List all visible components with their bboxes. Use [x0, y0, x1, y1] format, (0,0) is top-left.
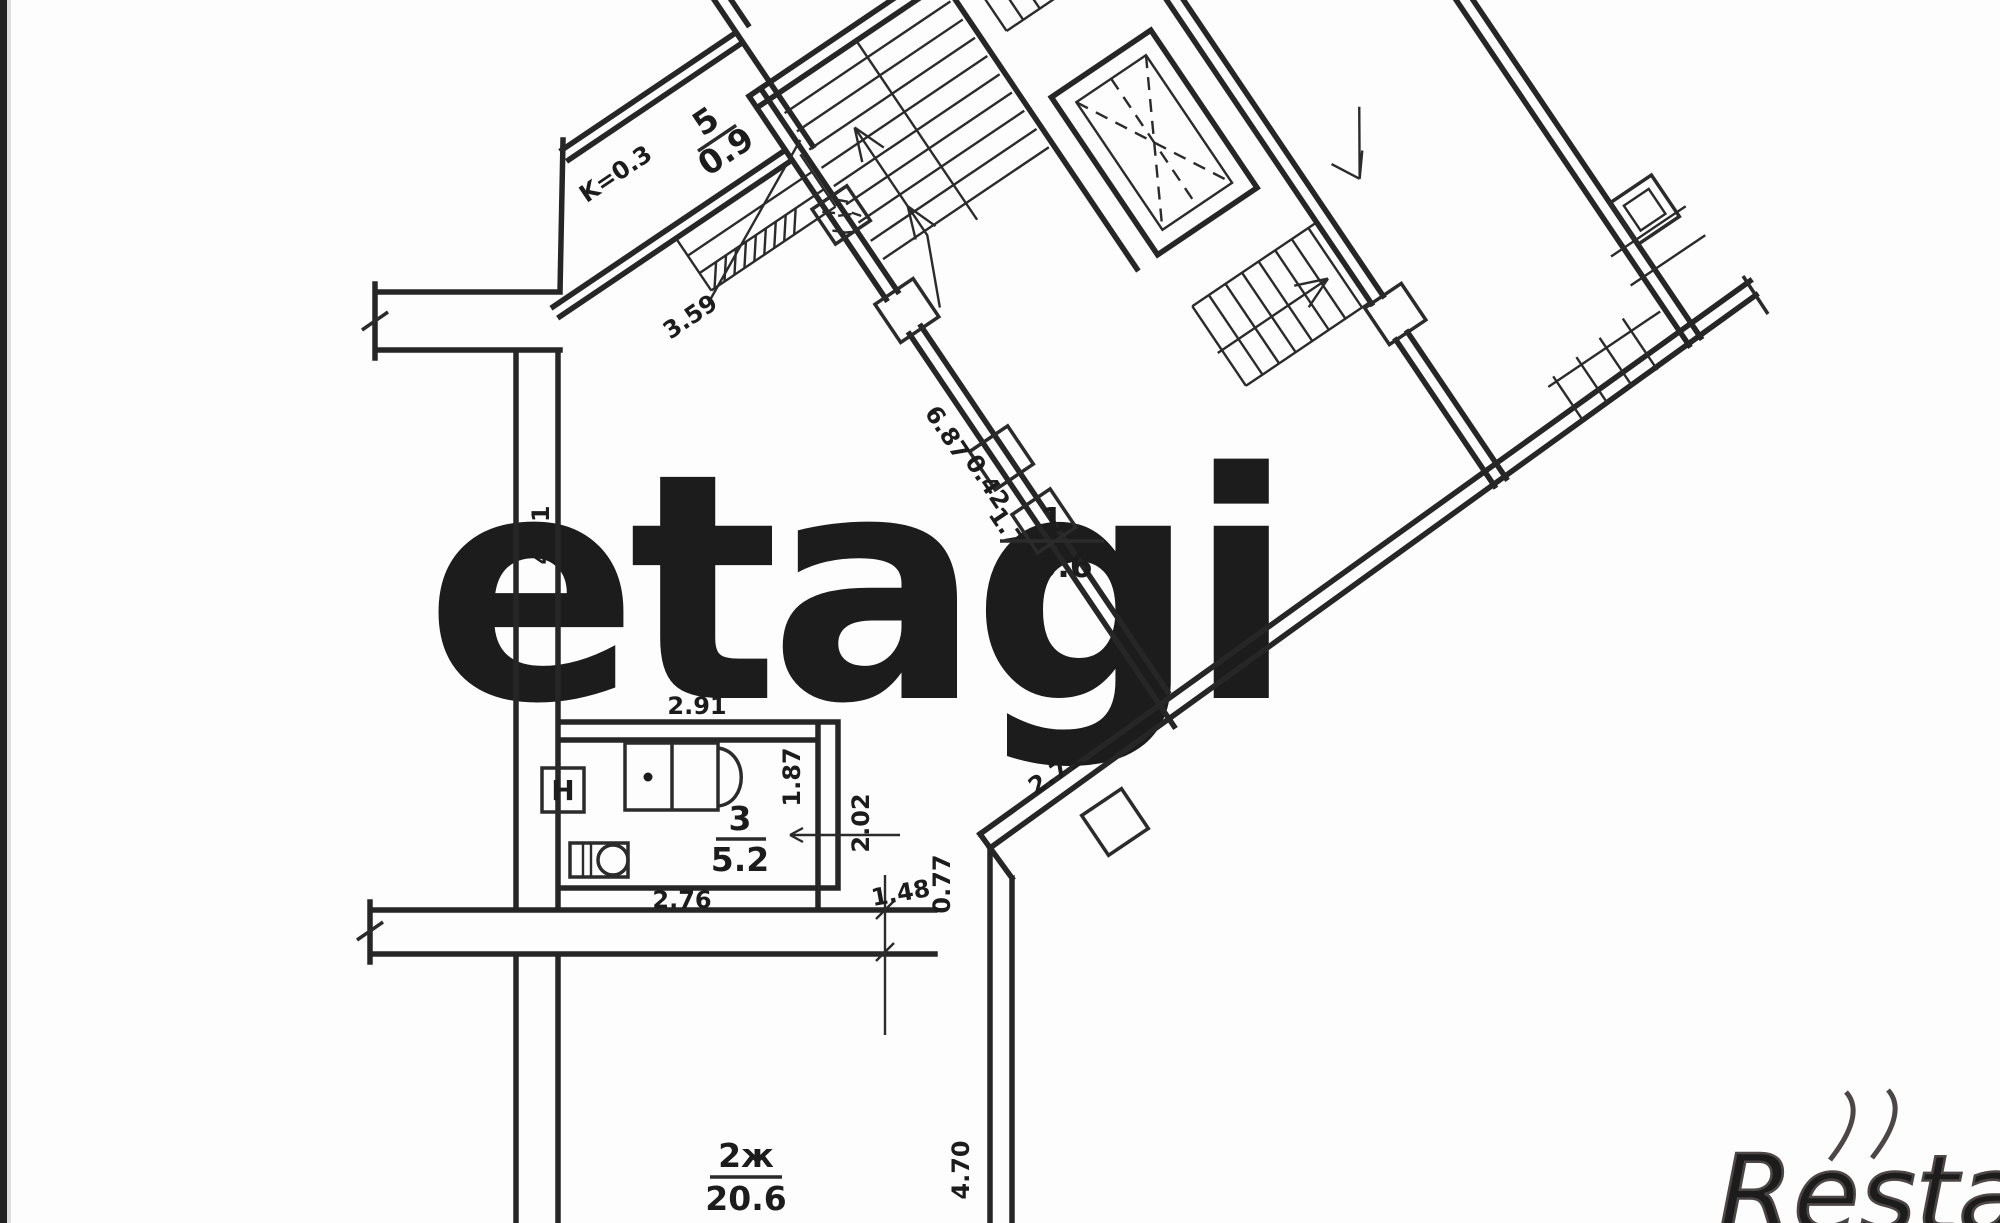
dim-label: 4.70: [947, 1140, 975, 1199]
room-living-label: 2ж 20.6: [705, 1136, 786, 1218]
flue-ticks: [1507, 206, 1752, 426]
heater-label: H: [551, 774, 574, 807]
watermark-restate-text: Restate: [1718, 1133, 2000, 1223]
floorplan-scan: etagi Restate: [0, 0, 2000, 1223]
wall-end-tick: [1743, 276, 1768, 314]
dim-label: 2.76: [652, 886, 711, 914]
door-icon: [1365, 283, 1426, 344]
scan-edge-shadow: [7, 0, 11, 1223]
elevator-x-mark: [1076, 55, 1232, 230]
watermark-restate: Restate: [1718, 1090, 2000, 1223]
room-area: 20.6: [705, 1179, 786, 1218]
dimension-lines: [790, 828, 900, 1035]
wall-tick: [357, 312, 388, 940]
scan-edge: [0, 0, 7, 1223]
dim-label: 2.02: [847, 793, 875, 852]
room-number: 1: [1041, 500, 1064, 539]
window-icon: [1082, 789, 1149, 856]
dim-label: 1.87: [778, 747, 806, 806]
dim-label: 1.48: [869, 874, 932, 912]
dim-label: 0.77: [928, 854, 956, 913]
room-balcony-label: 5 0.9: [670, 89, 760, 184]
washer-icon: [570, 843, 628, 877]
stairs-return-flights: [960, 0, 1370, 389]
room-area: 5.2: [711, 840, 769, 879]
dim-label: 4.11: [527, 505, 555, 564]
dim-label: 2.91: [667, 692, 726, 720]
room-number: 3: [729, 799, 752, 838]
watermark-etagi: etagi: [425, 407, 1285, 773]
heater-icon: H: [542, 768, 584, 812]
room-number: 2ж: [718, 1136, 774, 1175]
flow-arrow-icon: [1314, 107, 1393, 187]
room-area: 30.6: [1011, 546, 1092, 585]
